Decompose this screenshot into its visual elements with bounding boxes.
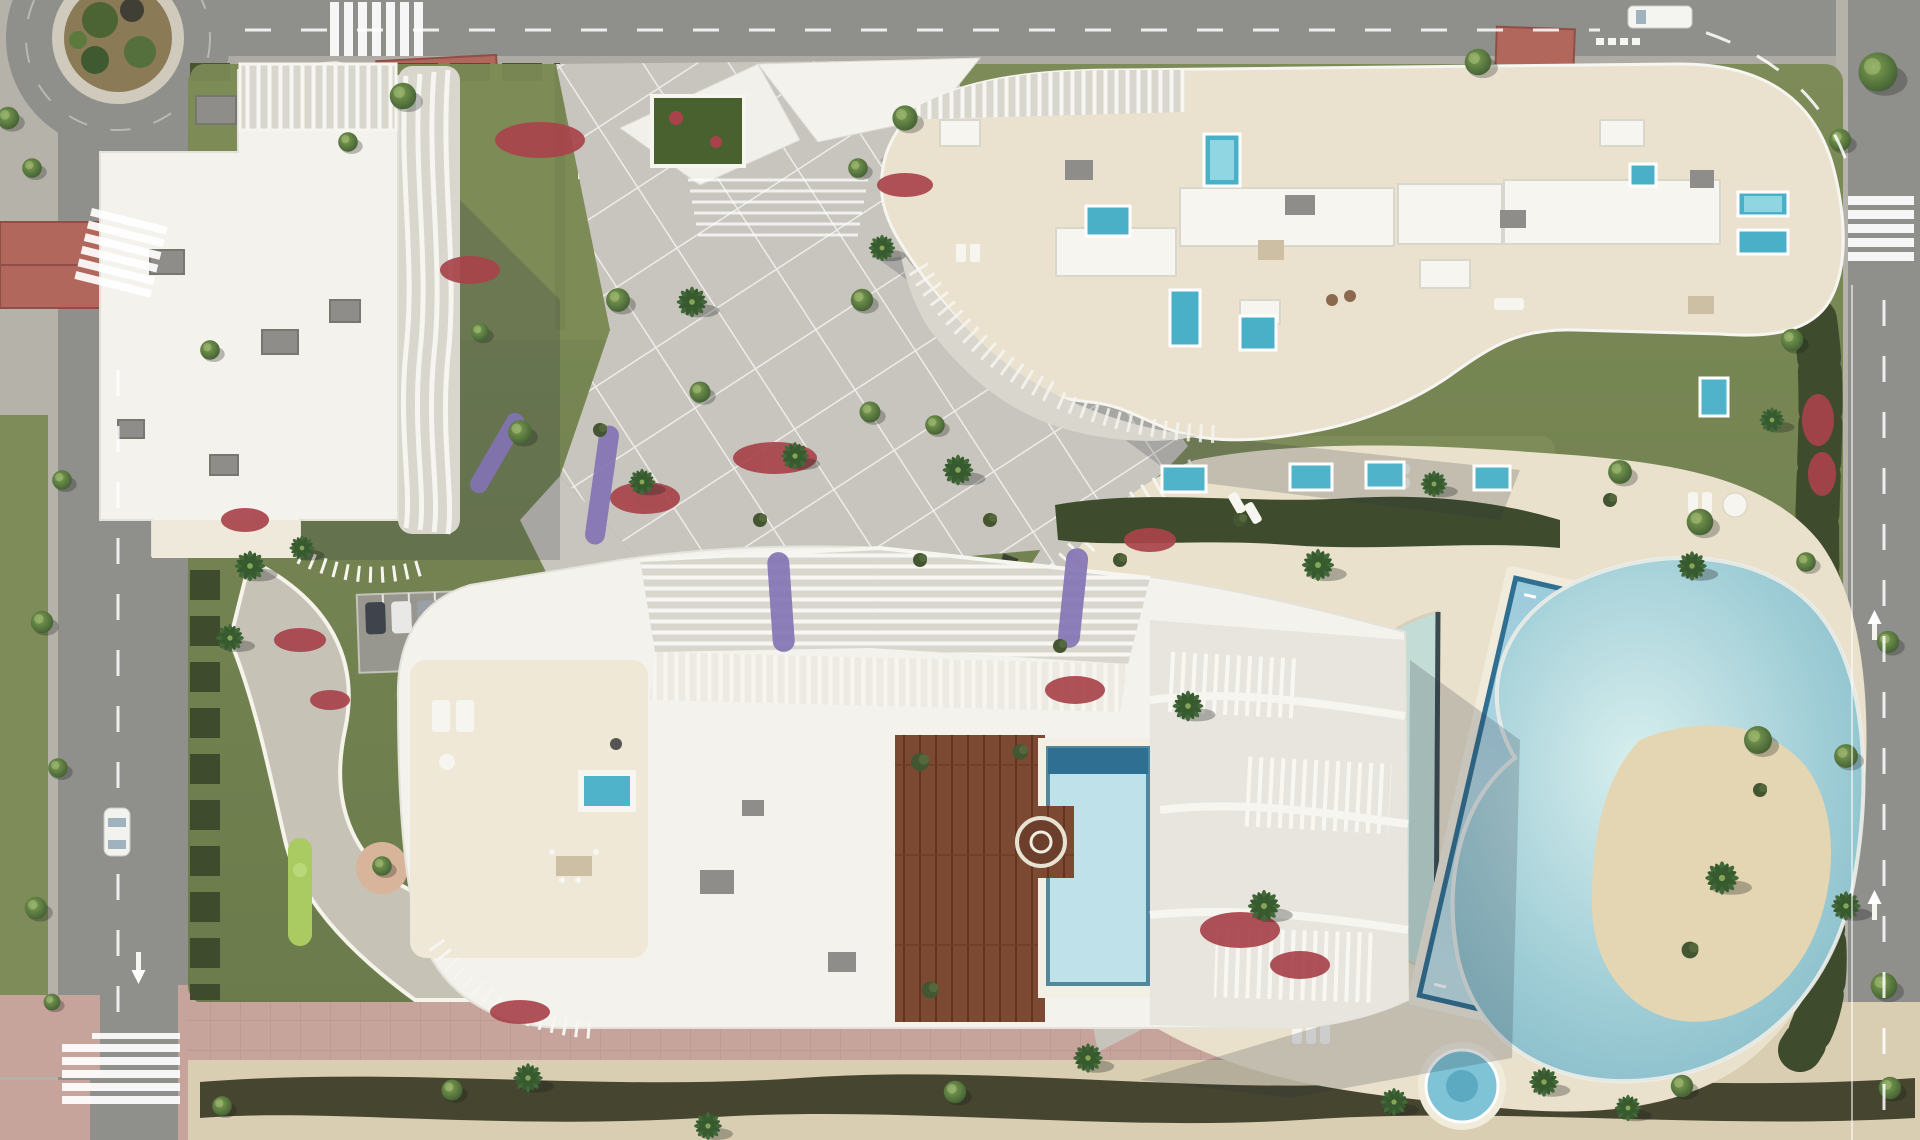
building-c-terrace <box>410 660 648 958</box>
aerial-render-canvas: Aerial top-down render of a residential … <box>0 0 1920 1140</box>
building-c <box>398 547 1408 1031</box>
pavilion-planter <box>652 96 744 166</box>
white-car <box>104 808 130 856</box>
parked-car-white <box>391 601 412 634</box>
round-daybed <box>1017 818 1065 866</box>
white-van <box>1628 6 1692 28</box>
parked-car-dark <box>365 602 386 635</box>
building-c-wood-deck <box>895 735 1158 1022</box>
aerial-render: Aerial top-down render of a residential … <box>0 0 1920 1140</box>
